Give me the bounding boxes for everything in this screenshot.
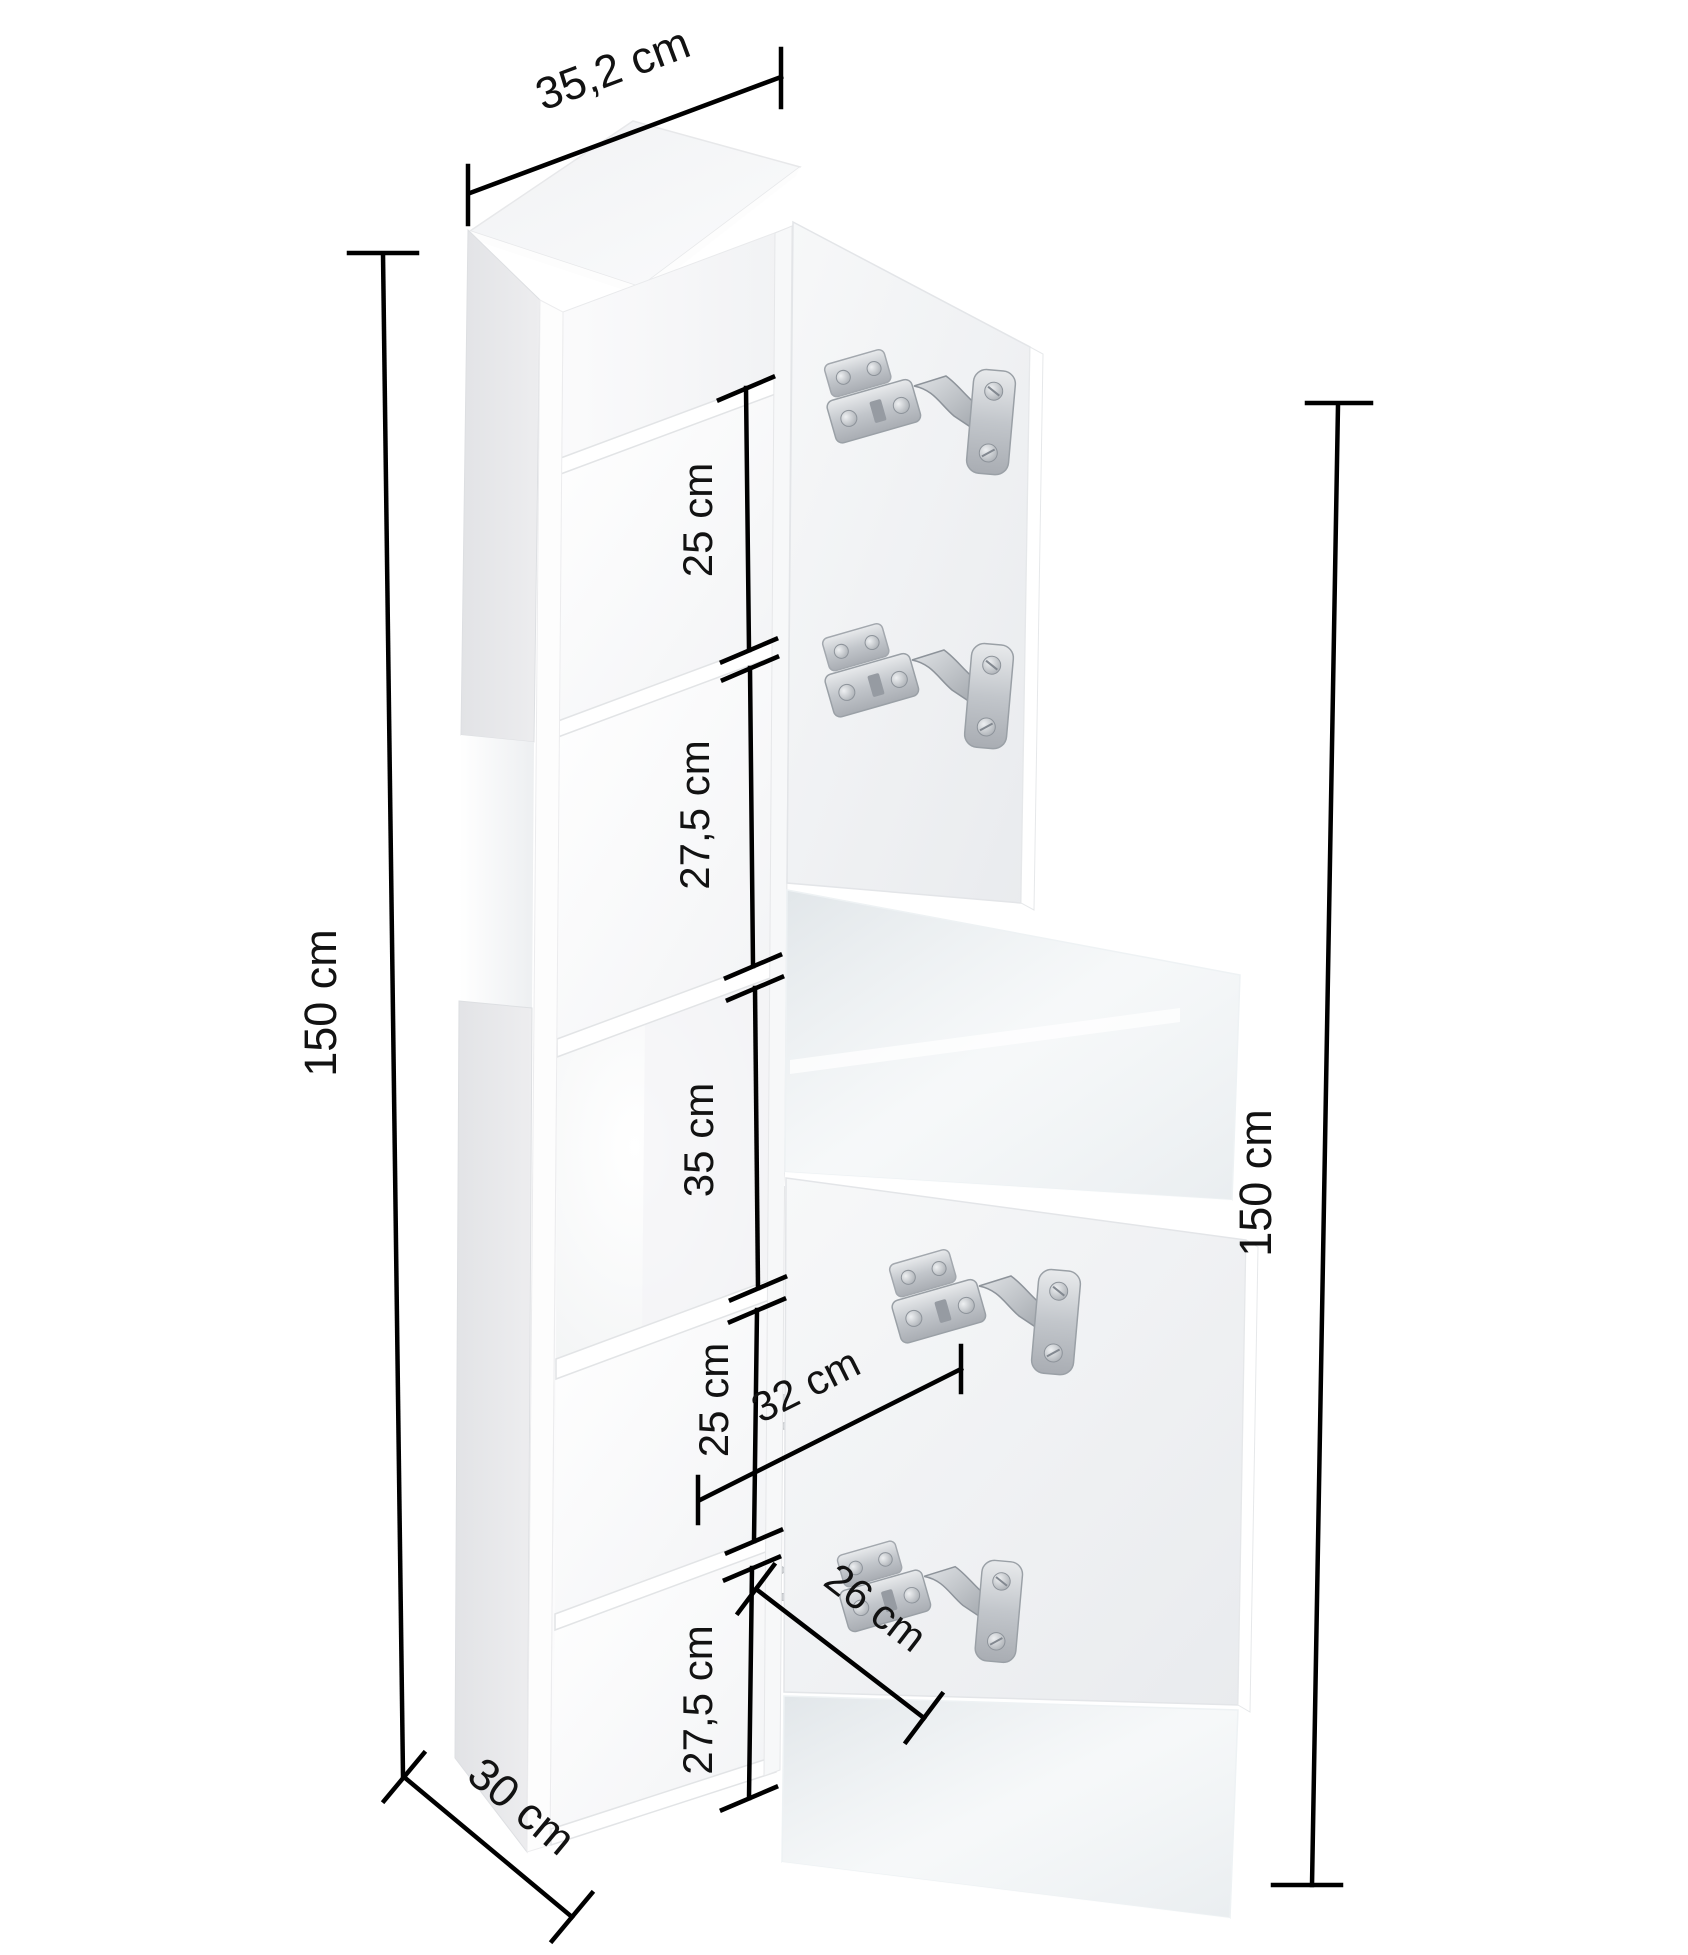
upper-door xyxy=(787,222,1030,903)
dimension-line xyxy=(754,1310,757,1541)
dim-left-height xyxy=(349,253,417,1776)
dimension-tick xyxy=(552,1893,592,1941)
diagram-canvas: 35,2 cm 150 cm 150 cm 30 cm 25 cm 27,5 c… xyxy=(0,0,1688,1955)
dimension-line xyxy=(749,1568,752,1798)
cabinet-dimension-diagram: 35,2 cm 150 cm 150 cm 30 cm 25 cm 27,5 c… xyxy=(0,0,1688,1955)
dimension-label: 35 cm xyxy=(675,1083,722,1197)
dimension-label: 35,2 cm xyxy=(529,17,697,121)
dimension-label: 150 cm xyxy=(1230,1109,1281,1257)
dim-right-height xyxy=(1273,403,1371,1885)
dimension-label: 25 cm xyxy=(690,1343,737,1457)
dimension-line xyxy=(383,254,403,1776)
dimension-label: 25 cm xyxy=(674,463,721,577)
dimension-line xyxy=(755,988,758,1288)
lower-door-glass xyxy=(782,1696,1238,1918)
dimension-label: 27,5 cm xyxy=(671,740,718,889)
dimension-label: 150 cm xyxy=(295,929,346,1077)
dimension-line xyxy=(750,668,753,966)
cabinet-illustration xyxy=(455,121,1258,1930)
upper-door-glass xyxy=(785,890,1240,1200)
niche-side-opening xyxy=(459,735,534,1008)
dimension-line xyxy=(1312,405,1338,1885)
cabinet-left-panel-upper xyxy=(461,230,540,742)
cabinet-left-panel-lower xyxy=(455,1001,532,1852)
dimension-line xyxy=(746,388,749,650)
dimension-label: 27,5 cm xyxy=(674,1625,721,1774)
